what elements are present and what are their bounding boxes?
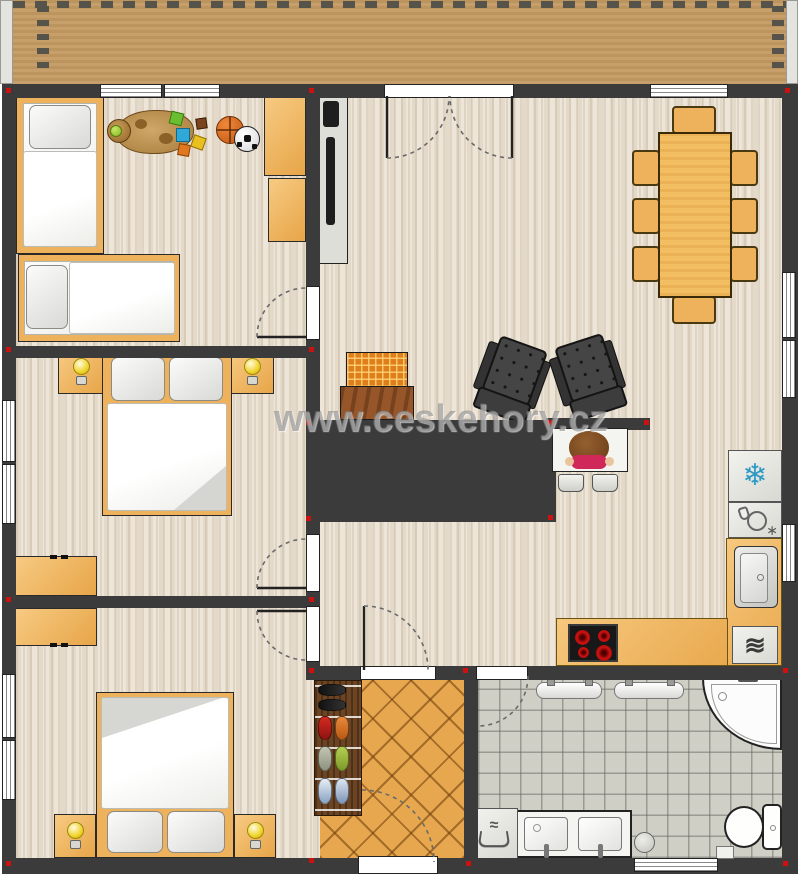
toilet-bowl <box>724 806 764 848</box>
shoe <box>335 778 349 804</box>
kitchen-sink <box>734 546 778 608</box>
washing-machine: ≋ <box>732 626 778 664</box>
wardrobe-kidsroom-a <box>264 96 306 176</box>
lamp-bulb-icon <box>67 822 84 839</box>
faucet-icon <box>598 844 603 858</box>
toy-block-brown <box>195 117 207 129</box>
window-kitchen-east <box>782 524 796 582</box>
shoe <box>335 716 349 740</box>
window-bedroom2-a <box>2 674 16 738</box>
window-bedroom1-b <box>2 464 16 524</box>
window-bathroom <box>634 858 718 872</box>
dining-table <box>658 132 732 298</box>
dining-chair <box>730 246 758 282</box>
door-bedroom2 <box>306 606 320 662</box>
pillow <box>107 811 163 853</box>
door-kidsroom <box>306 286 320 340</box>
corner-marker <box>6 347 11 352</box>
duvet <box>101 697 229 809</box>
burner <box>596 645 612 661</box>
shoe <box>318 716 332 740</box>
door-corridor-entry <box>360 666 436 680</box>
balcony <box>13 0 786 84</box>
door-bathroom <box>476 666 528 680</box>
shoe <box>318 778 332 804</box>
corner-marker <box>466 861 471 866</box>
stove-cooktop <box>568 624 618 662</box>
toilet-paper-box <box>716 846 734 859</box>
shoe <box>318 684 346 696</box>
wall-entry-bathroom-divider <box>464 680 478 858</box>
window-bedroom1-a <box>2 400 16 462</box>
lamp-bulb-icon <box>73 358 90 375</box>
corner-marker <box>309 88 314 93</box>
faucet-icon <box>544 844 549 858</box>
dining-chair <box>632 198 660 234</box>
dining-chair <box>672 106 716 134</box>
corner-marker <box>309 597 314 602</box>
fridge: ❄ <box>728 450 782 502</box>
dresser-bedroom2 <box>15 608 97 646</box>
tv-cabinet <box>318 94 348 264</box>
desk-chair <box>558 474 584 492</box>
balcony-railing-hatch-top <box>13 1 786 8</box>
lamp-bulb-icon <box>244 358 261 375</box>
lamp-bulb-icon <box>247 822 264 839</box>
shoe <box>318 699 346 711</box>
double-bed-bedroom1 <box>102 350 232 516</box>
vanity-double-sink <box>516 810 632 858</box>
door-front-entrance <box>358 856 438 874</box>
window-living-east-b <box>782 340 796 398</box>
drain-icon <box>718 692 727 701</box>
toilet-tank <box>762 804 782 850</box>
dishwasher-icon: ∗ <box>729 503 781 537</box>
nightstand <box>54 814 96 858</box>
corner-marker <box>783 668 788 673</box>
corner-marker <box>6 88 11 93</box>
wall-kidsroom-bedroom1-divider <box>16 346 306 358</box>
shoe <box>318 746 332 771</box>
burner <box>598 630 610 642</box>
burner <box>578 647 589 658</box>
snowflake-icon: ❄ <box>742 461 767 491</box>
double-bed-bedroom2 <box>96 692 234 858</box>
dining-chair <box>632 150 660 186</box>
single-bed-2 <box>18 254 180 342</box>
dining-chair <box>672 296 716 324</box>
duvet-fold <box>174 466 226 510</box>
vanity-sink <box>578 817 622 851</box>
dining-chair <box>730 150 758 186</box>
corner-marker <box>306 516 311 521</box>
corner-marker <box>6 597 11 602</box>
duvet <box>107 403 227 511</box>
window-kidsroom-a <box>100 84 162 98</box>
corner-marker <box>785 88 790 93</box>
corner-marker <box>309 347 314 352</box>
corner-marker <box>783 861 788 866</box>
nightstand <box>234 814 276 858</box>
shoe <box>335 746 349 771</box>
corner-marker <box>309 858 314 863</box>
tv-icon <box>326 137 335 225</box>
toy-block-orange <box>177 143 191 157</box>
balcony-railing-hatch-left <box>37 6 49 76</box>
pillow <box>111 357 165 401</box>
duvet-fold <box>102 698 222 738</box>
pillow <box>169 357 223 401</box>
pillow <box>167 811 225 853</box>
dining-chair <box>632 246 660 282</box>
balcony-railing-hatch-right <box>772 6 784 76</box>
single-bed-1 <box>16 96 104 254</box>
corner-marker <box>463 668 468 673</box>
pillow <box>26 265 68 329</box>
dishwasher: ∗ <box>728 502 782 538</box>
window-bedroom2-b <box>2 740 16 800</box>
duvet <box>23 151 97 247</box>
bathroom-radiator <box>536 682 602 699</box>
washer-waves-icon: ≋ <box>744 632 766 658</box>
balcony-outer-edge-right <box>786 0 798 84</box>
wall-bedroom1-bedroom2-divider <box>16 596 306 608</box>
dining-chair <box>730 198 758 234</box>
speaker-icon <box>323 101 339 127</box>
wardrobe-kidsroom-b <box>268 178 306 242</box>
window-living-east-a <box>782 272 796 338</box>
handwash-icon: ≈ <box>490 822 499 830</box>
corner-marker <box>309 668 314 673</box>
toy-ball-green <box>110 125 122 137</box>
dresser-bedroom1 <box>15 556 97 596</box>
window-living-north <box>650 84 728 98</box>
duvet <box>69 262 175 334</box>
desk-chair <box>592 474 618 492</box>
pillow <box>29 105 91 149</box>
wall-east <box>782 84 798 874</box>
drain-icon <box>757 574 764 581</box>
fireplace-firebox <box>346 352 408 388</box>
toy-block-blue <box>176 128 190 142</box>
floor-plan: ❄ ∗ ≋ <box>0 0 798 876</box>
vanity-sink <box>524 817 568 851</box>
window-kidsroom-b <box>164 84 220 98</box>
watermark: www.ceskehory.cz <box>274 398 608 441</box>
balcony-outer-edge-left <box>0 0 13 84</box>
bathroom-stool <box>634 832 655 853</box>
bathroom-radiator <box>614 682 684 699</box>
corner-marker <box>548 515 553 520</box>
corner-marker <box>6 861 11 866</box>
corner-marker <box>644 420 649 425</box>
burner <box>575 630 590 645</box>
door-bedroom1 <box>306 534 320 592</box>
door-balcony <box>384 84 514 98</box>
soccer-ball-toy <box>234 126 260 152</box>
